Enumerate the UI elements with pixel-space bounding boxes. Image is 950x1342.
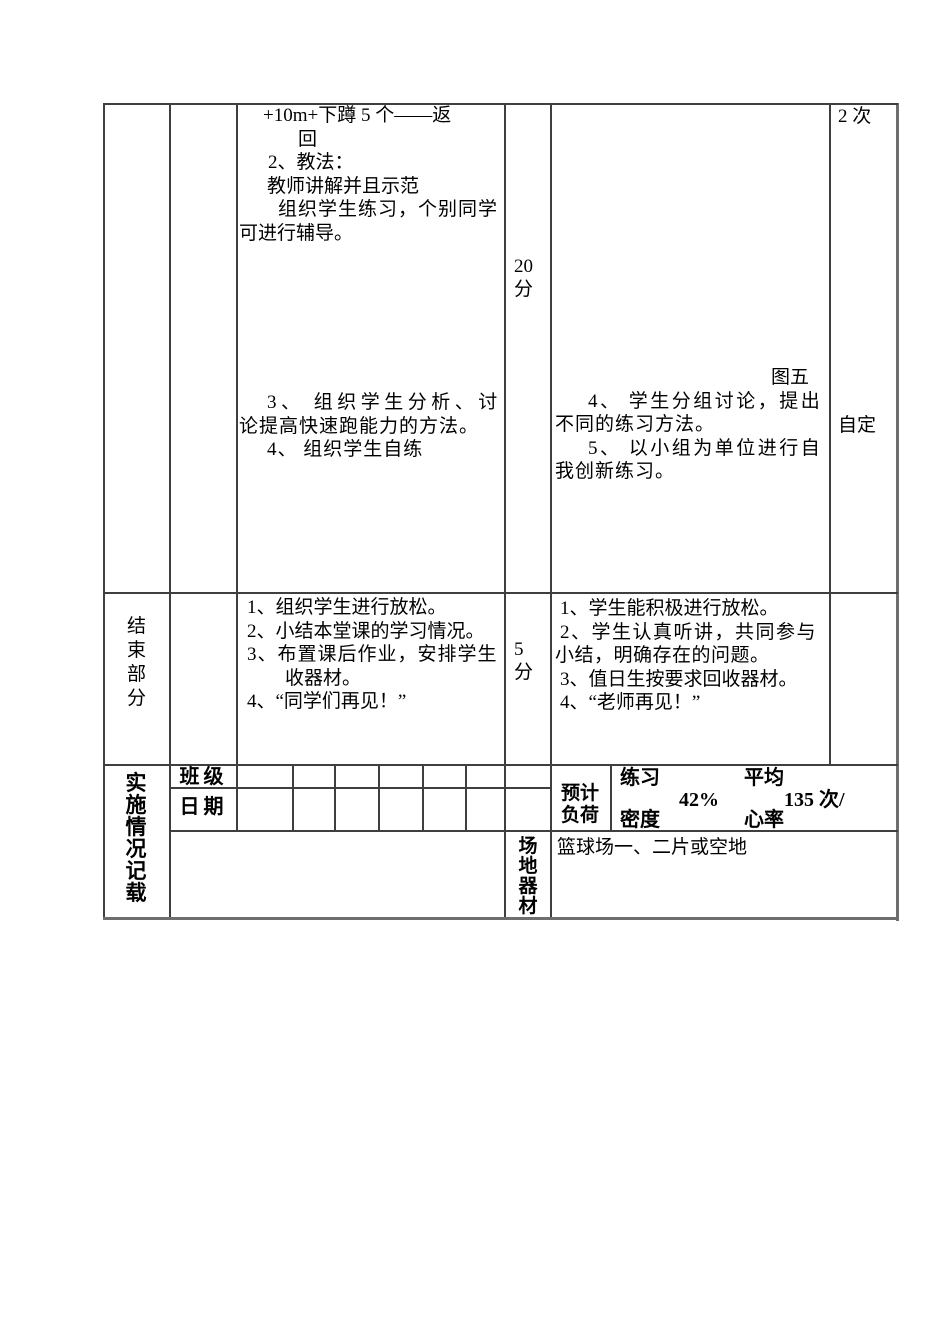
text-line: 图五 <box>771 366 828 390</box>
main-student-activity-text: 图五4、 学生分组讨论，提出不同的练习方法。5、 以小组为单位进行自我创新练习。 <box>555 366 828 484</box>
practice-density-top: 练习 <box>620 767 660 791</box>
text-line: 不同的练习方法。 <box>555 413 828 437</box>
text-line: 论提高快速跑能力的方法。 <box>239 415 505 439</box>
text-line: 回 <box>298 128 505 152</box>
text-line: 教师讲解并且示范 <box>267 175 505 199</box>
venue-equipment-label: 场 地 器 材 <box>504 837 552 917</box>
text-line: 1、学生能积极进行放松。 <box>560 597 828 621</box>
text-line: 4、“同学们再见！” <box>247 690 505 714</box>
text-line: 3、 组织学生分析、讨 <box>267 391 505 415</box>
avg-heart-rate-bottom: 心率 <box>744 809 784 833</box>
record-section-label: 实 施 情 况 记 载 <box>103 772 169 904</box>
text-line: 我创新练习。 <box>555 460 828 484</box>
text-line: 组织学生练习，个别同学 <box>278 198 505 222</box>
avg-heart-rate-top: 平均 <box>744 767 784 791</box>
text-line: 1、组织学生进行放松。 <box>247 596 505 620</box>
grid-line-horizontal <box>103 592 898 594</box>
load-label: 预计 负荷 <box>550 783 610 827</box>
text-line: 2、教法： <box>268 151 505 175</box>
grid-line-vertical <box>236 103 238 832</box>
text-line: 小结，明确存在的问题。 <box>555 644 828 668</box>
venue-equipment-text: 篮球场一、二片或空地 <box>557 836 747 860</box>
text-line: 3、布置课后作业，安排学生 <box>247 643 505 667</box>
closing-part-label: 结 束 部 分 <box>103 615 170 711</box>
main-time-cell: 20分 <box>514 256 533 301</box>
practice-density-value: 42% <box>679 789 719 813</box>
grid-line-vertical <box>378 765 380 832</box>
grid-line-vertical <box>610 765 612 832</box>
text-line: 20 <box>514 256 533 279</box>
text-line: 4、“老师再见！” <box>560 691 828 715</box>
main-reps-self: 自定 <box>838 414 876 438</box>
grid-line-vertical <box>896 103 899 921</box>
lesson-plan-page: +10m+下蹲 5 个——返回2、教法：教师讲解并且示范组织学生练习，个别同学可… <box>0 0 950 1342</box>
practice-density-bottom: 密度 <box>620 809 660 833</box>
text-line: 3、值日生按要求回收器材。 <box>560 668 828 692</box>
text-line: 4、 组织学生自练 <box>267 438 505 462</box>
text-line: +10m+下蹲 5 个——返 <box>263 104 505 128</box>
grid-line-vertical <box>422 765 424 832</box>
grid-line-horizontal <box>169 830 898 832</box>
grid-line-horizontal <box>103 917 899 920</box>
date-row-label: 日期 <box>169 796 238 820</box>
text-line: 分 <box>514 662 533 685</box>
text-line: 收器材。 <box>285 667 505 691</box>
text-line: 2、学生认真听讲，共同参与 <box>560 621 828 645</box>
text-line: 分 <box>514 279 533 302</box>
text-line: 2、小结本堂课的学习情况。 <box>247 620 505 644</box>
avg-heart-rate-value: 135 次/ <box>784 789 845 813</box>
grid-line-vertical <box>465 765 467 832</box>
grid-line-vertical <box>292 765 294 832</box>
grid-line-vertical <box>334 765 336 832</box>
text-line: 5 <box>514 639 533 662</box>
text-line: 4、 学生分组讨论，提出 <box>588 390 828 414</box>
class-row-label: 班级 <box>169 766 238 790</box>
main-teacher-activity-text: +10m+下蹲 5 个——返回2、教法：教师讲解并且示范组织学生练习，个别同学可… <box>239 104 505 462</box>
closing-student-activity-text: 1、学生能积极进行放松。2、学生认真听讲，共同参与小结，明确存在的问题。3、值日… <box>555 597 828 715</box>
main-reps-top: 2 次 <box>838 105 871 129</box>
text-line: 5、 以小组为单位进行自 <box>588 437 828 461</box>
grid-line-vertical <box>829 103 831 765</box>
closing-time-cell: 5分 <box>514 639 533 684</box>
text-line: 可进行辅导。 <box>239 222 505 246</box>
closing-teacher-activity-text: 1、组织学生进行放松。2、小结本堂课的学习情况。3、布置课后作业，安排学生收器材… <box>239 596 505 714</box>
